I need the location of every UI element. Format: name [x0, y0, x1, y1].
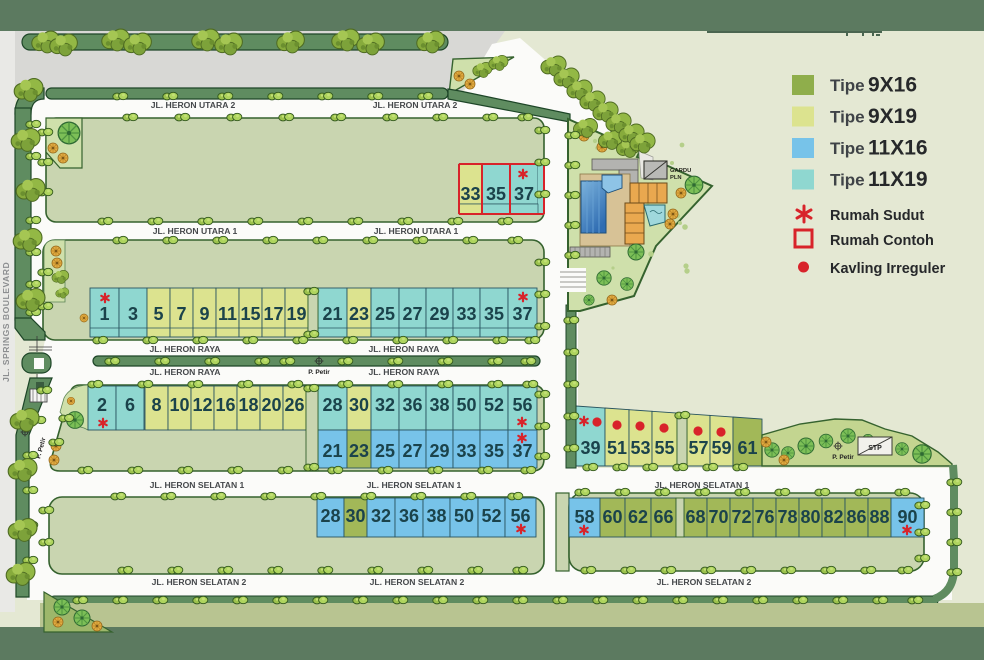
svg-text:66: 66: [653, 507, 673, 527]
svg-text:58: 58: [574, 507, 594, 527]
svg-text:11X19: 11X19: [868, 168, 928, 191]
svg-text:9X16: 9X16: [868, 74, 917, 97]
svg-text:7: 7: [176, 304, 186, 324]
svg-text:70: 70: [708, 507, 728, 527]
svg-text:JL. HERON SELATAN 2: JL. HERON SELATAN 2: [152, 577, 247, 587]
svg-text:90: 90: [897, 507, 917, 527]
svg-text:JL. HERON UTARA 1: JL. HERON UTARA 1: [374, 226, 459, 236]
svg-text:68: 68: [685, 507, 705, 527]
svg-text:59: 59: [711, 438, 731, 458]
svg-text:18: 18: [238, 395, 258, 415]
svg-text:9X19: 9X19: [868, 105, 917, 128]
svg-text:Tipe: Tipe: [830, 171, 865, 190]
svg-text:5: 5: [153, 304, 163, 324]
svg-text:52: 52: [484, 395, 504, 415]
svg-text:33: 33: [456, 304, 476, 324]
svg-text:JL. HERON RAYA: JL. HERON RAYA: [369, 367, 440, 377]
svg-text:19: 19: [286, 304, 306, 324]
svg-text:30: 30: [349, 395, 369, 415]
svg-text:Tipe: Tipe: [830, 108, 865, 127]
svg-text:80: 80: [800, 507, 820, 527]
svg-text:21: 21: [322, 441, 342, 461]
svg-text:32: 32: [371, 506, 391, 526]
svg-text:6: 6: [125, 395, 135, 415]
svg-text:1: 1: [99, 304, 109, 324]
svg-text:Rumah Contoh: Rumah Contoh: [830, 233, 934, 249]
svg-text:28: 28: [322, 395, 342, 415]
svg-text:88: 88: [869, 507, 889, 527]
svg-text:JL. HERON SELATAN 1: JL. HERON SELATAN 1: [367, 480, 462, 490]
svg-text:56: 56: [512, 395, 532, 415]
svg-text:51: 51: [607, 438, 627, 458]
svg-text:JL. HERON UTARA 2: JL. HERON UTARA 2: [151, 100, 236, 110]
svg-text:33: 33: [460, 184, 480, 204]
svg-text:37: 37: [514, 184, 534, 204]
svg-text:23: 23: [349, 304, 369, 324]
svg-text:JL. HERON SELATAN 1: JL. HERON SELATAN 1: [655, 480, 750, 490]
svg-text:35: 35: [486, 184, 506, 204]
svg-text:39: 39: [580, 438, 600, 458]
svg-text:35: 35: [484, 304, 504, 324]
svg-text:61: 61: [737, 438, 757, 458]
svg-text:GARDU: GARDU: [670, 168, 691, 174]
svg-text:11: 11: [218, 304, 237, 324]
svg-text:8: 8: [151, 395, 161, 415]
svg-text:JL. HERON UTARA 2: JL. HERON UTARA 2: [373, 100, 458, 110]
svg-text:12: 12: [192, 395, 212, 415]
svg-text:21: 21: [322, 304, 342, 324]
svg-text:PLN: PLN: [670, 175, 682, 181]
svg-text:JL. HERON UTARA 1: JL. HERON UTARA 1: [153, 226, 238, 236]
svg-text:36: 36: [402, 395, 422, 415]
svg-text:50: 50: [454, 506, 474, 526]
svg-text:15: 15: [240, 304, 260, 324]
svg-text:53: 53: [630, 438, 650, 458]
svg-text:36: 36: [399, 506, 419, 526]
svg-text:P. Petir: P. Petir: [308, 369, 330, 376]
svg-text:20: 20: [261, 395, 281, 415]
svg-text:62: 62: [628, 507, 648, 527]
svg-text:72: 72: [731, 507, 751, 527]
svg-text:Kavling Irreguler: Kavling Irreguler: [830, 261, 946, 277]
svg-text:86: 86: [846, 507, 866, 527]
svg-text:50: 50: [456, 395, 476, 415]
svg-text:11X16: 11X16: [868, 137, 928, 160]
svg-text:82: 82: [823, 507, 843, 527]
svg-text:27: 27: [402, 304, 422, 324]
svg-text:29: 29: [429, 304, 449, 324]
svg-text:60: 60: [602, 507, 622, 527]
svg-text:JL. SPRINGS BOULEVARD: JL. SPRINGS BOULEVARD: [1, 262, 11, 382]
svg-text:57: 57: [688, 438, 708, 458]
svg-text:Rumah Sudut: Rumah Sudut: [830, 208, 924, 224]
svg-text:10: 10: [169, 395, 189, 415]
svg-text:37: 37: [512, 441, 532, 461]
svg-text:38: 38: [426, 506, 446, 526]
svg-text:16: 16: [215, 395, 235, 415]
svg-text:9: 9: [199, 304, 209, 324]
svg-text:37: 37: [512, 304, 532, 324]
svg-text:JL. HERON RAYA: JL. HERON RAYA: [150, 344, 221, 354]
svg-text:JL. HERON SELATAN 2: JL. HERON SELATAN 2: [370, 577, 465, 587]
svg-text:Tipe: Tipe: [830, 139, 865, 158]
svg-text:32: 32: [375, 395, 395, 415]
svg-text:JL. HERON SELATAN 2: JL. HERON SELATAN 2: [657, 577, 752, 587]
svg-text:JL. HERON RAYA: JL. HERON RAYA: [150, 367, 221, 377]
svg-text:2: 2: [97, 395, 107, 415]
svg-text:28: 28: [320, 506, 340, 526]
svg-text:29: 29: [429, 441, 449, 461]
svg-text:JL. HERON RAYA: JL. HERON RAYA: [369, 344, 440, 354]
svg-text:23: 23: [349, 441, 369, 461]
svg-text:17: 17: [263, 304, 283, 324]
svg-text:STP: STP: [868, 445, 882, 452]
svg-text:3: 3: [128, 304, 138, 324]
svg-text:26: 26: [284, 395, 304, 415]
svg-text:Tipe: Tipe: [830, 76, 865, 95]
svg-text:56: 56: [510, 506, 530, 526]
svg-text:55: 55: [654, 438, 674, 458]
svg-text:25: 25: [375, 441, 395, 461]
svg-text:JL. HERON SELATAN 1: JL. HERON SELATAN 1: [150, 480, 245, 490]
svg-text:76: 76: [754, 507, 774, 527]
svg-text:33: 33: [456, 441, 476, 461]
svg-text:30: 30: [345, 506, 365, 526]
svg-text:P. Petir: P. Petir: [832, 454, 854, 461]
svg-text:38: 38: [429, 395, 449, 415]
svg-text:52: 52: [481, 506, 501, 526]
svg-text:35: 35: [484, 441, 504, 461]
svg-text:27: 27: [402, 441, 422, 461]
svg-text:25: 25: [375, 304, 395, 324]
svg-text:78: 78: [777, 507, 797, 527]
